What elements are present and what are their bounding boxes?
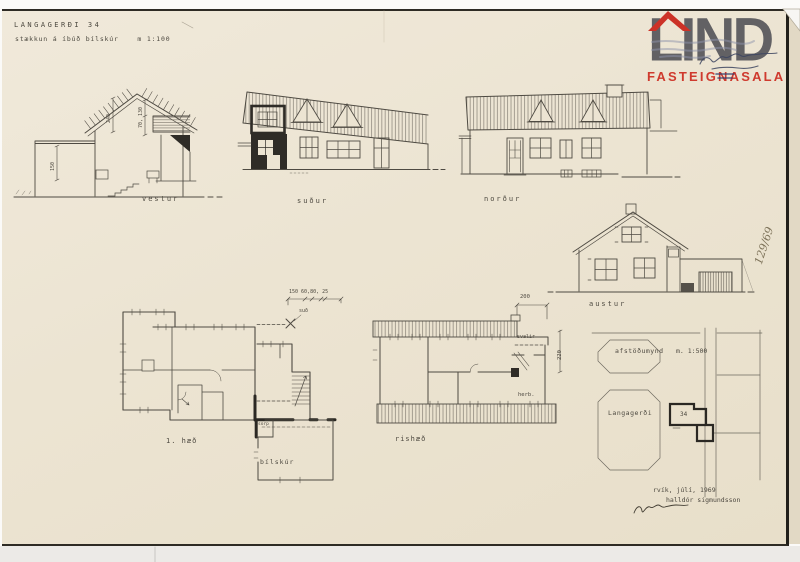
balcony-label: svalir — [517, 335, 535, 341]
sheet-architect: halldór sigmundsson — [666, 497, 740, 504]
site-street-label: Langagerði — [608, 410, 652, 417]
lind-roof-icon — [646, 9, 694, 33]
site-plan-scale: m. 1:500 — [676, 348, 707, 355]
attic-depth-dim: 220 — [557, 350, 563, 360]
south-elevation-label: suður — [297, 198, 328, 206]
east-elevation-label: austur — [589, 301, 626, 309]
scan-bottom-edge — [0, 546, 800, 562]
paper-sheet — [2, 9, 789, 546]
gable-height-dim: 240 — [107, 114, 113, 123]
window-note-label: suð — [299, 309, 308, 315]
balcony-width-dim: 200 — [520, 294, 530, 300]
site-plot-number: 34 — [680, 412, 687, 419]
sheet-date: rvík, júlí, 1969 — [653, 487, 716, 494]
north-elevation-label: norður — [484, 196, 521, 204]
gable-upper-dim: 70, 130 — [139, 107, 145, 128]
sheet-title: LANGAGERÐI 34 — [14, 22, 101, 30]
first-floor-label: 1. hæð — [166, 438, 197, 446]
west-elevation-label: vestur — [142, 196, 179, 204]
lind-logo-tagline: FASTEIGNASALA — [647, 69, 785, 84]
scan-right-edge — [789, 11, 800, 544]
sheet-subtitle-row: stækkun á íbúð bílskúr m 1:100 — [15, 36, 170, 43]
sheet-subtitle: stækkun á íbúð bílskúr — [15, 35, 119, 43]
waste-room-label: sorp — [258, 423, 269, 428]
scanned-drawing-sheet: LIND FASTEIGNASALA LANGAGERÐI 34 stækkun… — [0, 0, 800, 562]
extension-height-dim: 150 — [51, 162, 57, 171]
sheet-scale: m 1:100 — [137, 35, 170, 43]
garage-label: bílskúr — [260, 459, 294, 466]
room-label: herb. — [518, 392, 535, 398]
site-plan-label: afstöðumynd — [615, 348, 664, 355]
plan-widths-dim: 150 60,80, 25 — [289, 290, 328, 296]
attic-label: rishæð — [395, 436, 426, 444]
